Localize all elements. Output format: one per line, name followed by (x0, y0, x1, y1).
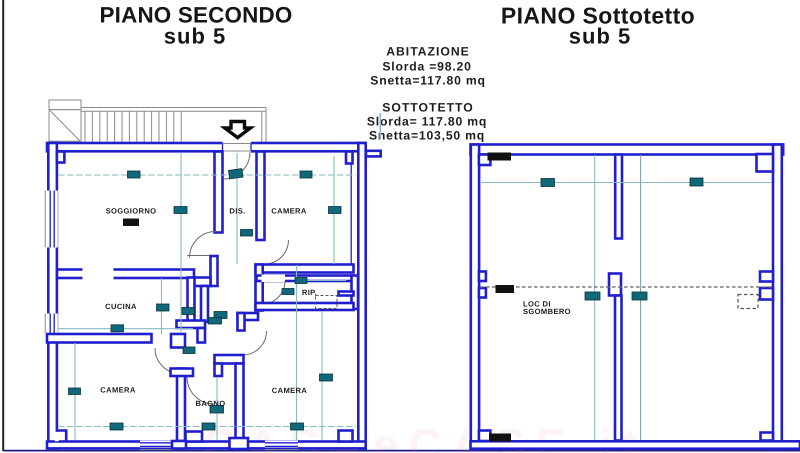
svg-text:SOGGIORNO: SOGGIORNO (106, 207, 157, 216)
svg-text:CAMERA: CAMERA (100, 386, 136, 395)
svg-text:Snetta=117.80 mq: Snetta=117.80 mq (370, 74, 485, 88)
svg-text:CUCINA: CUCINA (105, 302, 137, 311)
svg-text:RIP.: RIP. (302, 288, 317, 297)
svg-text:SOTTOTETTO: SOTTOTETTO (382, 101, 473, 115)
svg-text:SGOMBERO: SGOMBERO (523, 307, 571, 316)
svg-text:Slorda= 117.80 mq: Slorda= 117.80 mq (367, 115, 487, 129)
svg-text:sub 5: sub 5 (164, 24, 226, 49)
svg-text:Snetta=103,50 mq: Snetta=103,50 mq (369, 129, 485, 143)
svg-text:DIS.: DIS. (229, 207, 245, 216)
svg-text:CAMERA: CAMERA (271, 207, 307, 216)
svg-text:CAMERA: CAMERA (272, 386, 308, 395)
svg-text:BAGNO: BAGNO (195, 399, 225, 408)
svg-text:sub 5: sub 5 (569, 24, 631, 49)
svg-text:Slorda =98.20: Slorda =98.20 (382, 60, 471, 74)
svg-text:ABITAZIONE: ABITAZIONE (386, 45, 470, 59)
